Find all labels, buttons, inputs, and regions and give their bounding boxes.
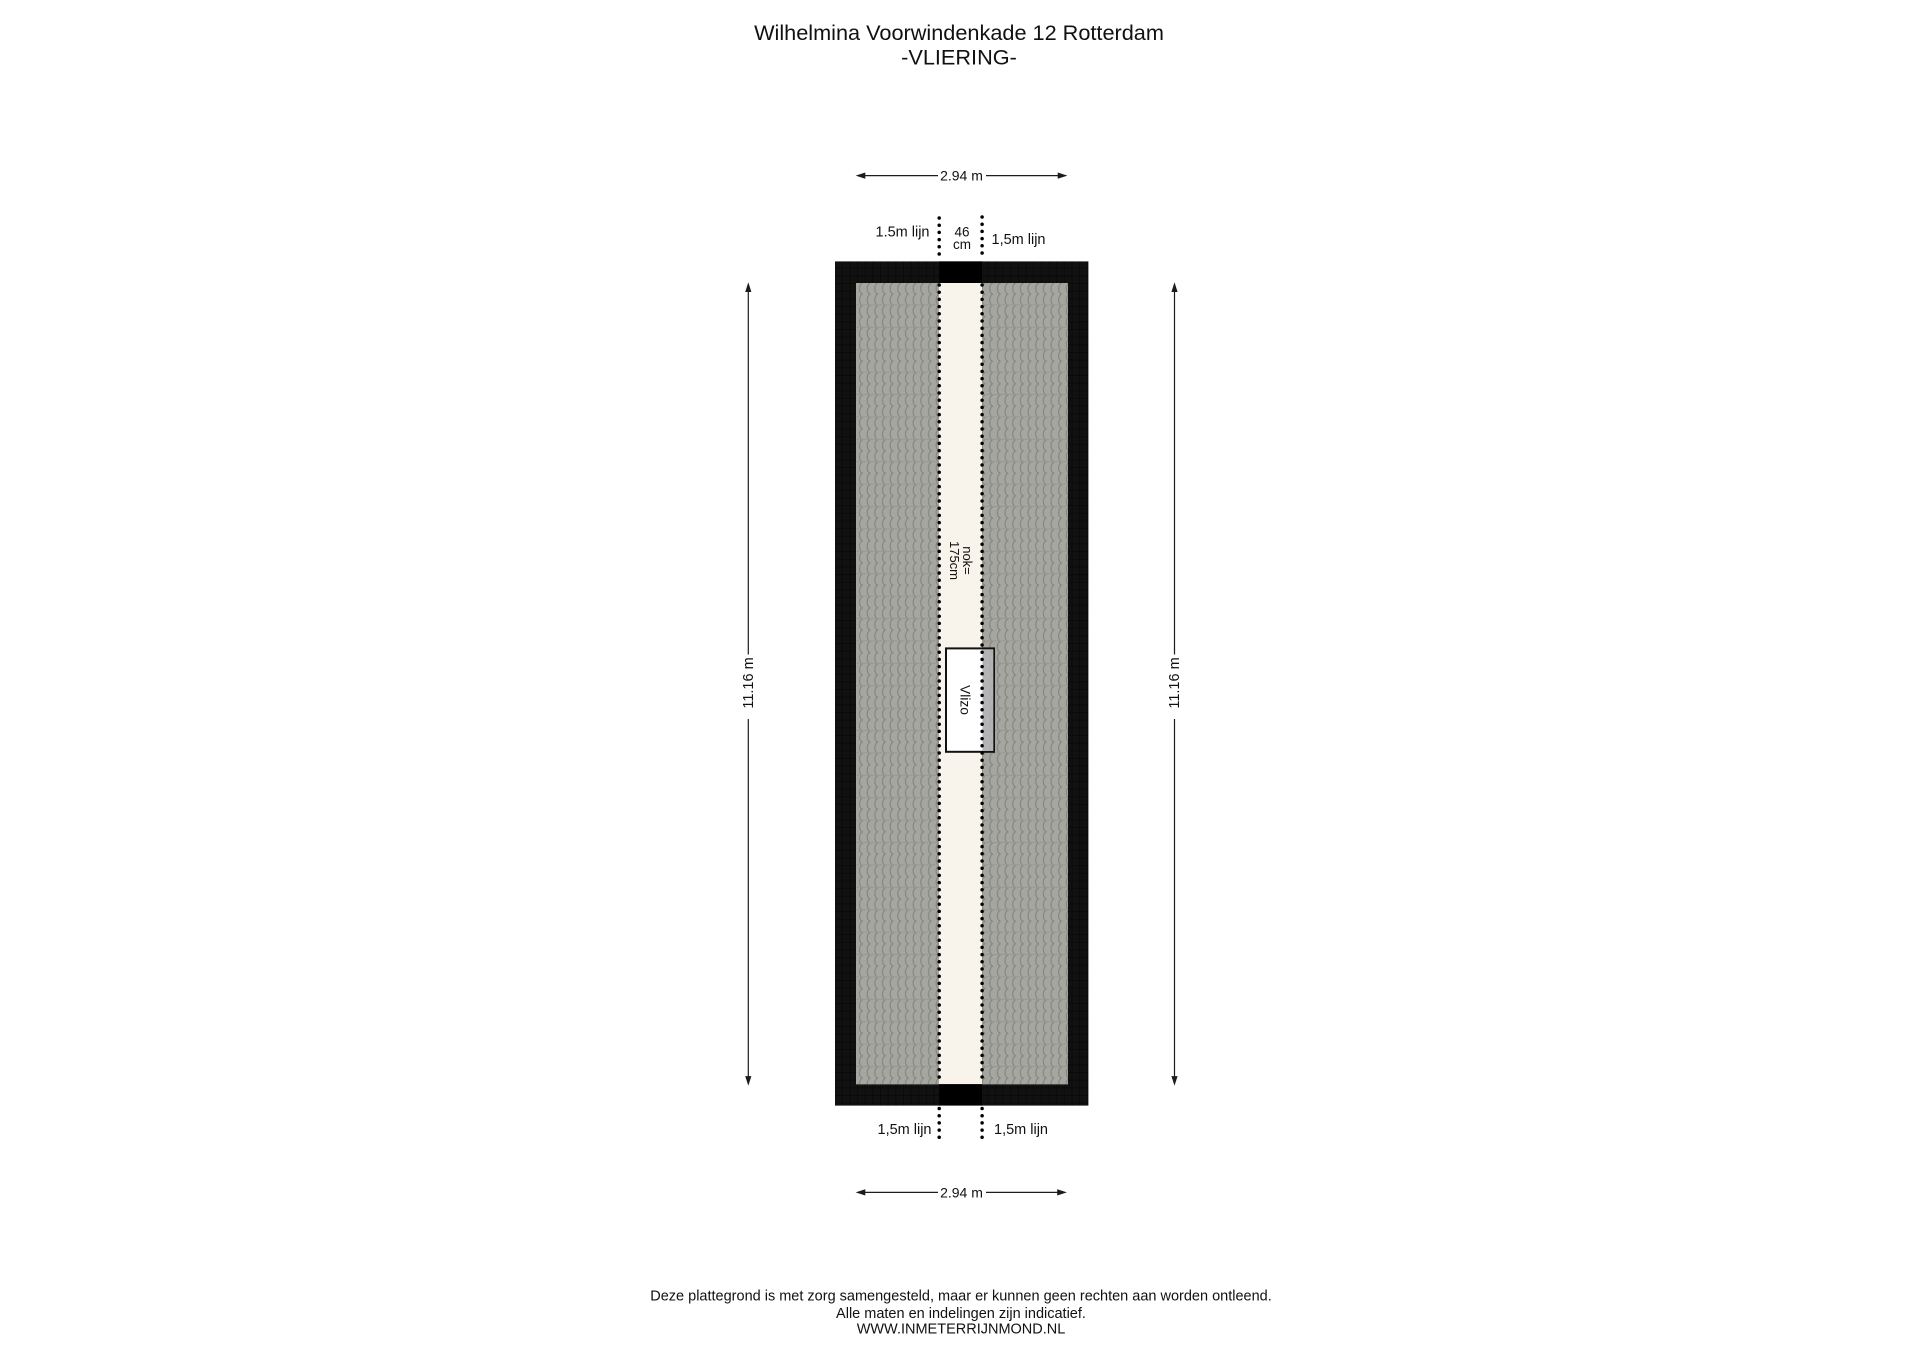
svg-text:1,5m lijn: 1,5m lijn [992, 232, 1046, 248]
svg-text:Deze plattegrond is met zorg s: Deze plattegrond is met zorg samengestel… [650, 1289, 1271, 1305]
svg-text:1,5m lijn: 1,5m lijn [994, 1122, 1048, 1138]
svg-text:1.5m lijn: 1.5m lijn [876, 225, 930, 241]
svg-text:Alle maten en indelingen zijn: Alle maten en indelingen zijn indicatief… [836, 1306, 1086, 1322]
svg-text:2.94 m: 2.94 m [940, 168, 983, 184]
svg-text:1,5m lijn: 1,5m lijn [878, 1122, 932, 1138]
svg-text:cm: cm [953, 237, 971, 252]
svg-text:Wilhelmina Voorwindenkade 12 R: Wilhelmina Voorwindenkade 12 Rotterdam [754, 20, 1164, 45]
svg-text:11.16 m: 11.16 m [1167, 657, 1183, 708]
svg-text:11.16 m: 11.16 m [741, 657, 757, 708]
svg-text:2.94 m: 2.94 m [940, 1185, 983, 1201]
svg-text:Vlizo: Vlizo [958, 685, 973, 715]
svg-text:175cm: 175cm [947, 541, 962, 580]
svg-text:-VLIERING-: -VLIERING- [901, 44, 1017, 69]
svg-text:WWW.INMETERRIJNMOND.NL: WWW.INMETERRIJNMOND.NL [857, 1322, 1066, 1338]
